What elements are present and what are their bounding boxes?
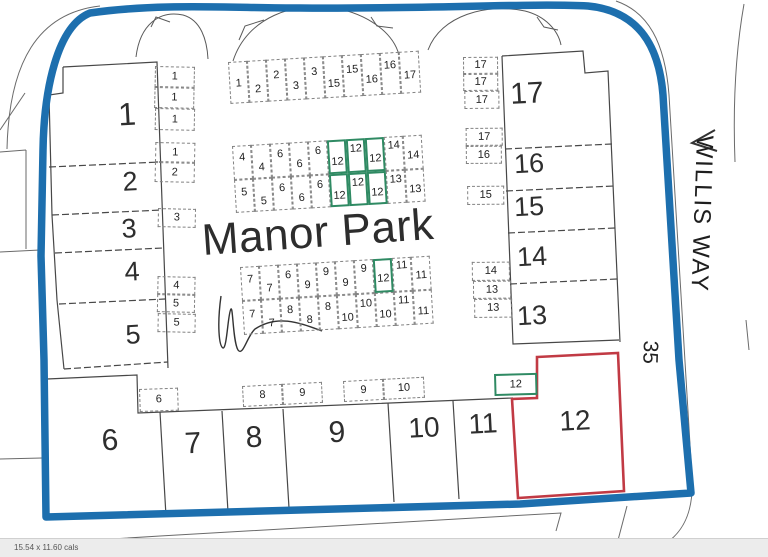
garage-cell-highlighted: 12 (329, 173, 350, 207)
garage-cell: 15 (342, 54, 363, 97)
garage-cell-number: 14 (407, 149, 420, 161)
garage-cell-number: 1 (172, 147, 178, 158)
garage-cell-number: 15 (346, 64, 359, 76)
garage-cell: 1 (155, 142, 195, 163)
garage-cell-number: 12 (377, 273, 390, 285)
garage-cell-number: 7 (249, 309, 256, 320)
garage-cell-number: 17 (404, 69, 417, 81)
garage-cell-number: 11 (398, 295, 410, 307)
garage-cell-highlighted: 12 (367, 171, 388, 205)
garage-cell: 11 (411, 256, 432, 291)
garage-cell: 8 (318, 295, 339, 330)
garage-cell: 8 (280, 298, 301, 333)
garage-cell: 3 (158, 208, 196, 228)
garage-cell: 17 (399, 51, 421, 94)
garage-cell-number: 17 (476, 94, 488, 105)
garage-cell-number: 6 (285, 269, 292, 280)
garage-cell-number: 7 (247, 274, 254, 285)
garage-cell: 10 (383, 377, 425, 400)
garage-cell-number: 1 (172, 71, 178, 82)
garage-cell: 6 (278, 264, 299, 299)
garage-cell: 6 (289, 141, 310, 176)
garage-cell: 17 (463, 74, 498, 91)
garage-cell-number: 12 (510, 379, 523, 390)
garage-cell-number: 13 (487, 303, 499, 314)
garage-cell: 17 (464, 91, 499, 109)
garage-cell: 15 (323, 55, 344, 98)
garage-cell-number: 9 (342, 277, 349, 288)
garage-cell: 1 (155, 66, 195, 88)
road-number-label: 35 (637, 340, 662, 364)
garage-cell: 2 (247, 60, 268, 103)
garage-cell-number: 9 (304, 279, 311, 290)
garage-cell-number: 16 (478, 149, 490, 160)
garage-cell: 7 (242, 300, 263, 335)
garage-cell: 4 (251, 144, 272, 179)
garage-cells-layer: 1111234551223315151616174466612121214145… (0, 0, 768, 557)
garage-cell: 16 (466, 146, 502, 164)
garage-cell-number: 15 (480, 190, 492, 201)
garage-cell: 9 (282, 382, 323, 405)
site-plan-canvas: 1111234551223315151616174466612121214145… (0, 0, 768, 557)
garage-cell: 6 (139, 388, 179, 412)
garage-cell: 9 (354, 259, 375, 294)
garage-cell: 6 (270, 143, 291, 178)
garage-cell-number: 3 (174, 212, 180, 223)
garage-cell: 17 (463, 57, 498, 74)
garage-cell: 3 (285, 57, 306, 100)
garage-cell-number: 17 (478, 131, 490, 142)
garage-cell: 9 (316, 261, 337, 296)
garage-cell: 4 (232, 145, 253, 180)
garage-cell-number: 12 (333, 190, 346, 202)
garage-cell-number: 4 (258, 162, 265, 173)
garage-cell-number: 5 (173, 298, 179, 309)
garage-cell-number: 1 (171, 92, 177, 103)
garage-cell: 7 (261, 299, 282, 334)
garage-cell-number: 8 (306, 314, 313, 325)
garage-cell-number: 6 (156, 394, 163, 405)
garage-cell-highlighted: 12 (327, 139, 348, 174)
garage-cell: 5 (157, 294, 195, 313)
garage-cell-highlighted: 12 (373, 258, 394, 293)
garage-cell-number: 12 (331, 156, 344, 168)
garage-cell-number: 2 (273, 69, 280, 80)
garage-cell: 15 (467, 186, 504, 205)
garage-cell: 5 (234, 179, 255, 213)
garage-cell-number: 6 (296, 158, 303, 169)
garage-cell: 7 (240, 266, 261, 301)
garage-cell: 6 (272, 177, 293, 211)
garage-cell-number: 9 (360, 385, 367, 396)
garage-cell-number: 12 (371, 187, 384, 199)
garage-cell-number: 1 (235, 78, 242, 89)
garage-cell: 11 (392, 257, 413, 292)
garage-cell: 16 (361, 53, 382, 96)
garage-cell-number: 12 (351, 177, 364, 189)
garage-cell: 3 (304, 56, 325, 99)
garage-cell-number: 12 (349, 143, 362, 155)
garage-cell-highlighted: 12 (346, 138, 367, 173)
garage-cell: 1 (228, 61, 249, 104)
garage-cell-number: 17 (474, 60, 486, 71)
garage-cell: 14 (472, 262, 510, 281)
garage-cell-number: 15 (328, 78, 341, 90)
garage-cell-number: 12 (369, 153, 382, 165)
garage-cell: 9 (335, 260, 356, 295)
garage-cell-number: 7 (266, 283, 273, 294)
garage-cell: 1 (155, 108, 195, 131)
garage-cell: 16 (380, 52, 401, 95)
garage-cell-number: 6 (317, 180, 324, 191)
garage-cell: 13 (474, 299, 512, 318)
garage-cell: 4 (157, 276, 195, 295)
garage-cell-highlighted: 12 (348, 172, 369, 206)
street-name-label: WILLIS WAY (685, 135, 718, 293)
status-bar-dimensions: 15.54 x 11.60 cals (14, 543, 78, 552)
garage-cell: 6 (308, 140, 329, 175)
garage-cell-number: 3 (293, 80, 300, 91)
garage-cell-number: 8 (259, 390, 266, 401)
garage-cell-number: 8 (325, 301, 332, 312)
garage-cell-number: 10 (379, 309, 392, 321)
garage-cell: 13 (473, 281, 511, 299)
garage-cell-highlighted: 12 (365, 137, 386, 172)
garage-cell: 8 (299, 296, 320, 331)
garage-cell-number: 6 (279, 183, 286, 194)
garage-cell-number: 8 (287, 304, 294, 315)
garage-cell-number: 13 (409, 184, 422, 196)
garage-cell-number: 5 (173, 317, 179, 328)
garage-cell-number: 6 (298, 193, 305, 204)
garage-cell-number: 2 (172, 167, 178, 178)
garage-cell-number: 7 (269, 318, 276, 329)
garage-cell-number: 9 (323, 266, 330, 277)
garage-cell-number: 4 (173, 280, 179, 291)
garage-cell-number: 10 (341, 312, 354, 324)
garage-cell-number: 10 (359, 298, 372, 310)
garage-cell: 9 (343, 379, 384, 402)
garage-cell-number: 16 (384, 60, 397, 72)
garage-cell: 10 (356, 293, 377, 328)
garage-cell-number: 17 (475, 77, 487, 88)
garage-cell: 2 (266, 59, 287, 102)
garage-cell: 13 (405, 169, 426, 203)
garage-cell: 7 (259, 265, 280, 300)
garage-cell-number: 9 (299, 388, 306, 399)
garage-cell-number: 16 (365, 74, 378, 86)
garage-cell-number: 13 (389, 174, 402, 186)
garage-cell: 14 (384, 136, 405, 171)
garage-cell: 13 (386, 170, 407, 204)
garage-cell-number: 6 (315, 145, 322, 156)
garage-cell-number: 14 (387, 140, 400, 152)
garage-cell: 8 (242, 384, 283, 407)
garage-cell-number: 6 (277, 148, 284, 159)
garage-cell: 10 (375, 292, 396, 327)
garage-cell-number: 5 (241, 187, 248, 198)
garage-cell: 14 (403, 135, 424, 170)
garage-cell: 10 (337, 294, 358, 329)
status-bar: 15.54 x 11.60 cals (0, 538, 768, 557)
garage-cell-number: 11 (417, 305, 429, 317)
garage-cell: 1 (154, 87, 194, 109)
garage-cell-number: 1 (172, 114, 178, 125)
garage-cell: 5 (157, 313, 195, 333)
garage-cell: 6 (291, 175, 312, 209)
garage-cell-highlighted: 12 (494, 373, 538, 396)
garage-cell-number: 11 (415, 269, 427, 281)
garage-cell-number: 3 (311, 66, 318, 77)
garage-cell-number: 5 (260, 196, 267, 207)
garage-cell-number: 14 (485, 266, 497, 277)
garage-cell: 6 (310, 174, 331, 208)
garage-cell-number: 10 (398, 383, 411, 395)
garage-cell: 17 (466, 128, 503, 146)
garage-cell: 5 (253, 178, 274, 212)
garage-cell-number: 4 (239, 152, 246, 163)
garage-cell: 11 (394, 291, 415, 326)
garage-cell-number: 11 (396, 260, 408, 272)
garage-cell-number: 2 (255, 84, 262, 95)
garage-cell-number: 13 (486, 284, 498, 295)
garage-cell: 11 (413, 290, 434, 325)
garage-cell-number: 9 (360, 263, 367, 274)
garage-cell: 2 (155, 162, 195, 183)
garage-cell: 9 (297, 262, 318, 297)
